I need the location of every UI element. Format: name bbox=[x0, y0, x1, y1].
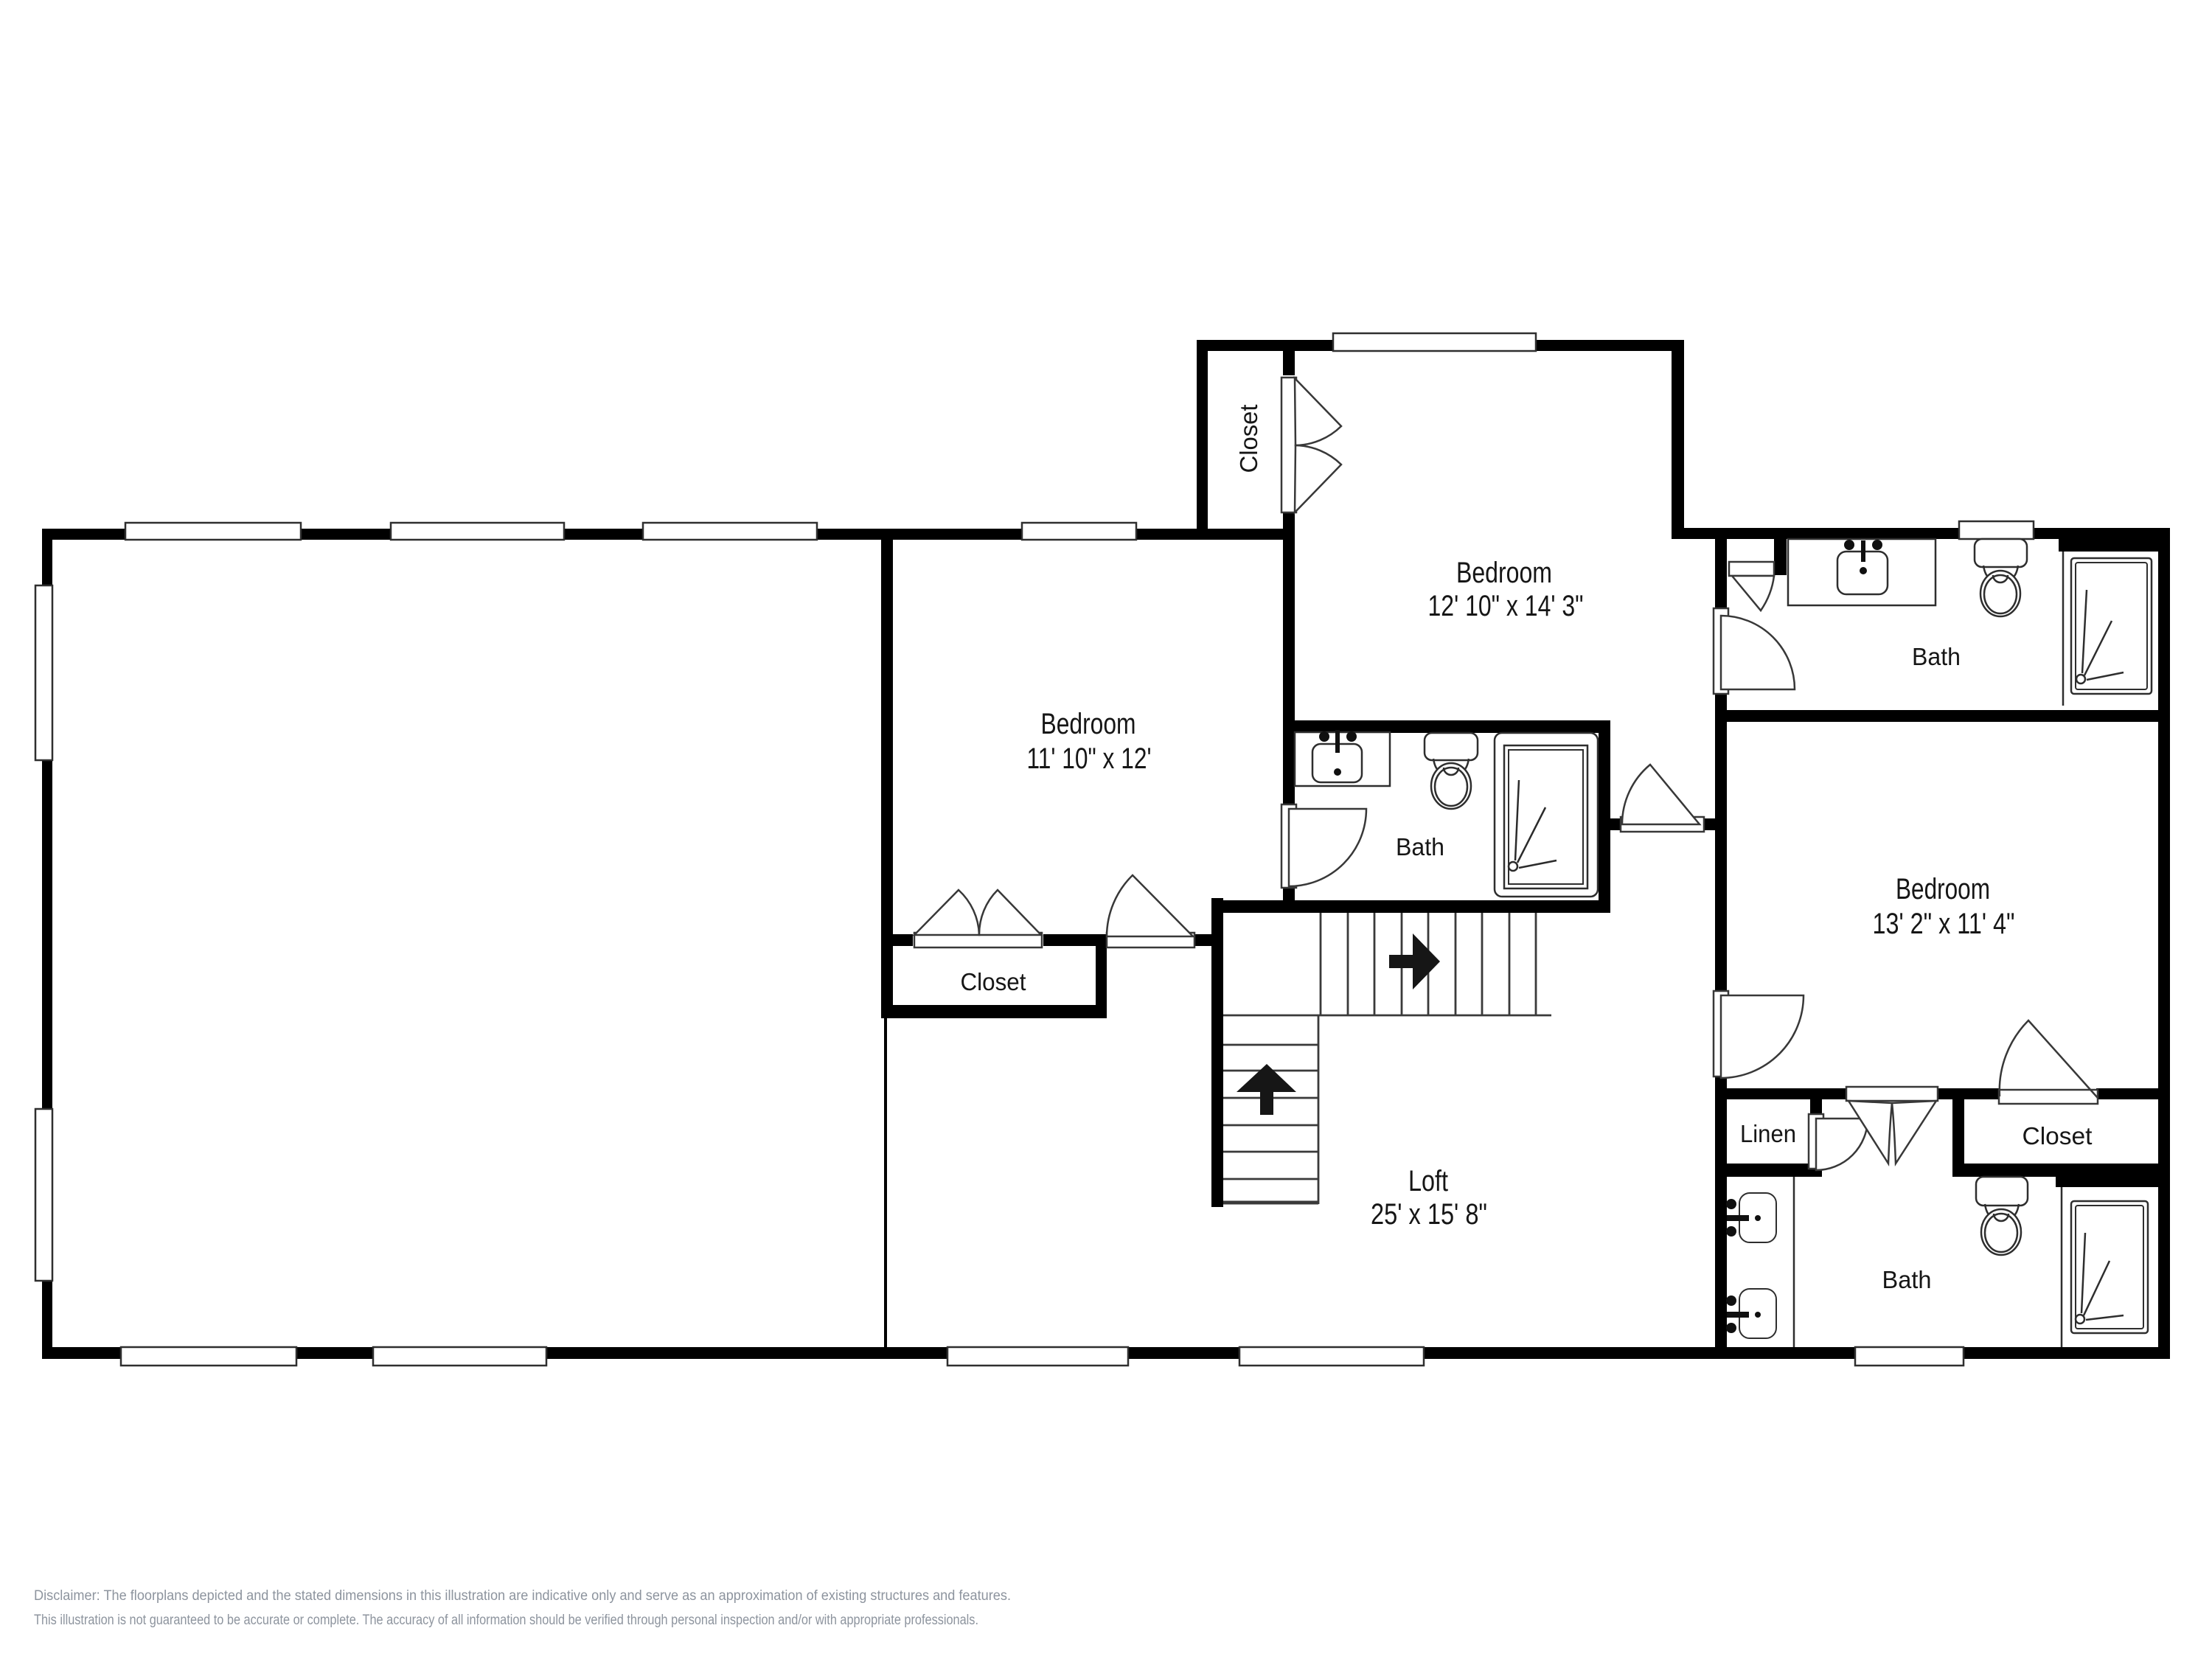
svg-text:Bedroom: Bedroom bbox=[1041, 708, 1136, 740]
svg-text:Bath: Bath bbox=[1912, 643, 1961, 670]
svg-text:Bedroom: Bedroom bbox=[1456, 557, 1552, 589]
svg-text:This illustration is not guara: This illustration is not guaranteed to b… bbox=[34, 1613, 978, 1628]
svg-text:Bedroom: Bedroom bbox=[1896, 873, 1990, 905]
svg-text:Bath: Bath bbox=[1882, 1266, 1932, 1293]
svg-text:12' 10" x 14' 3": 12' 10" x 14' 3" bbox=[1428, 590, 1584, 622]
svg-text:Disclaimer: The floorplans dep: Disclaimer: The floorplans depicted and … bbox=[34, 1588, 1011, 1604]
svg-text:Closet: Closet bbox=[2023, 1122, 2093, 1150]
svg-text:Loft: Loft bbox=[1408, 1165, 1448, 1197]
svg-text:Closet: Closet bbox=[961, 968, 1026, 995]
svg-text:25' x 15' 8": 25' x 15' 8" bbox=[1371, 1198, 1487, 1231]
svg-text:13' 2" x 11' 4": 13' 2" x 11' 4" bbox=[1873, 908, 2015, 940]
svg-text:Linen: Linen bbox=[1740, 1120, 1796, 1147]
svg-text:11' 10" x 12': 11' 10" x 12' bbox=[1027, 742, 1152, 775]
svg-text:Bath: Bath bbox=[1396, 833, 1444, 860]
svg-text:Closet: Closet bbox=[1235, 405, 1262, 473]
